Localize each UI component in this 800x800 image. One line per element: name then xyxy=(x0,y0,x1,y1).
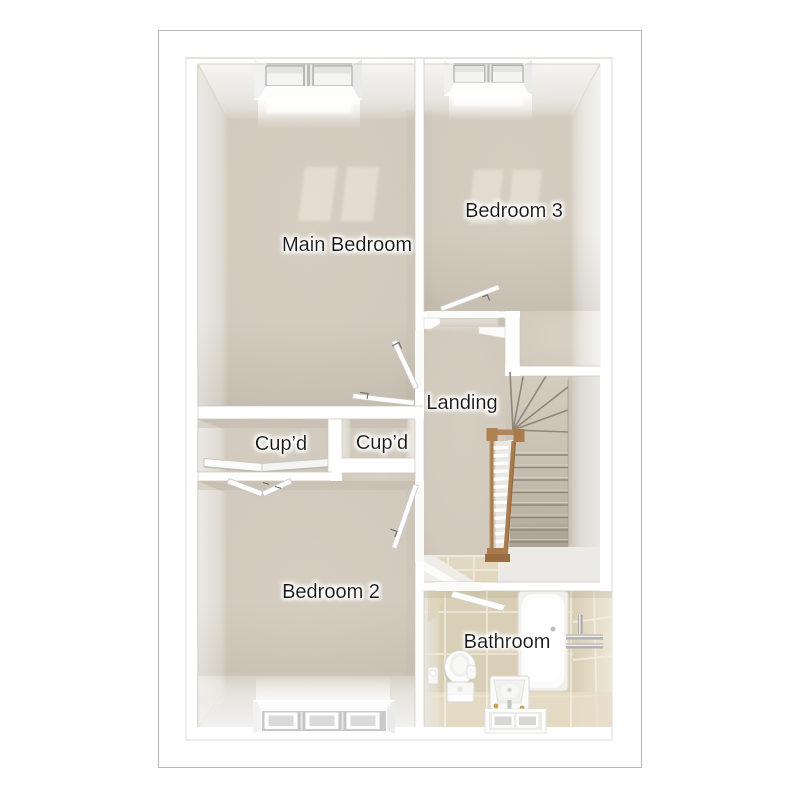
svg-text:Bedroom 2: Bedroom 2 xyxy=(282,581,380,603)
svg-text:Main Bedroom: Main Bedroom xyxy=(282,234,412,256)
svg-text:Bathroom: Bathroom xyxy=(464,631,551,653)
svg-text:Landing: Landing xyxy=(426,392,497,414)
svg-text:Bedroom 3: Bedroom 3 xyxy=(465,200,563,222)
svg-text:Cup’d: Cup’d xyxy=(356,432,408,454)
svg-text:Cup’d: Cup’d xyxy=(255,433,307,455)
